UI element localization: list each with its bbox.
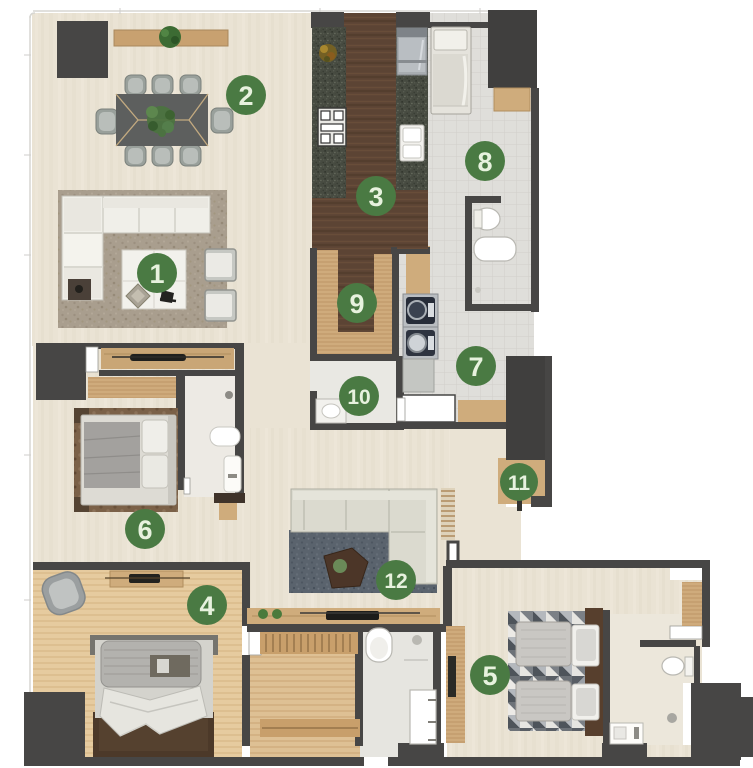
svg-text:12: 12 xyxy=(384,570,407,593)
svg-text:11: 11 xyxy=(508,472,531,495)
svg-text:9: 9 xyxy=(349,289,364,319)
svg-text:10: 10 xyxy=(347,386,370,409)
svg-text:2: 2 xyxy=(238,81,253,111)
svg-text:4: 4 xyxy=(199,591,214,621)
svg-text:5: 5 xyxy=(482,661,497,691)
svg-text:3: 3 xyxy=(368,182,383,212)
svg-text:8: 8 xyxy=(477,147,492,177)
svg-text:1: 1 xyxy=(149,259,164,289)
svg-text:7: 7 xyxy=(468,352,483,382)
svg-text:6: 6 xyxy=(137,515,152,545)
